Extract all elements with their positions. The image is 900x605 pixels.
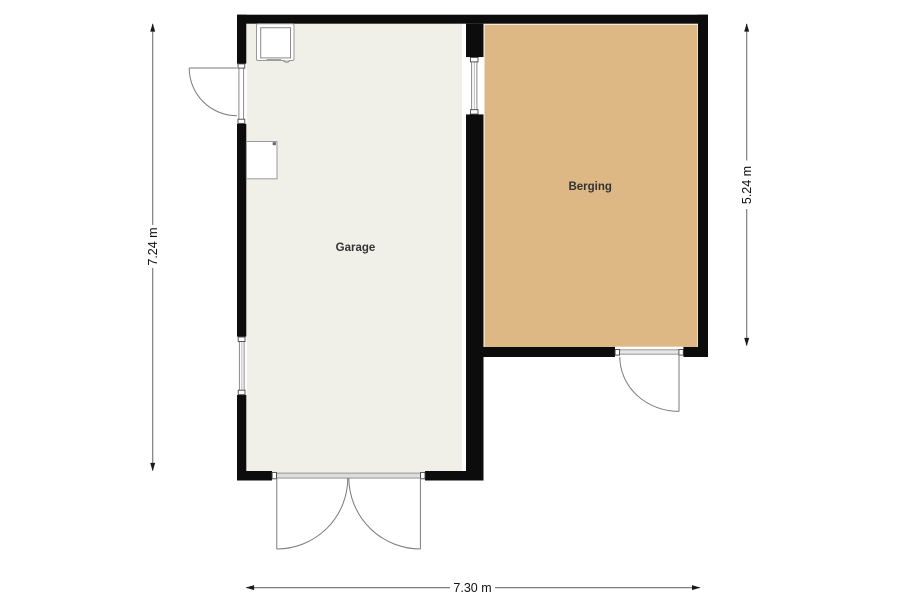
- svg-text:7.24 m: 7.24 m: [146, 227, 160, 265]
- svg-text:Garage: Garage: [336, 242, 376, 254]
- svg-text:5.24 m: 5.24 m: [740, 166, 754, 204]
- svg-text:Berging: Berging: [568, 181, 611, 193]
- svg-text:7.30 m: 7.30 m: [453, 581, 491, 595]
